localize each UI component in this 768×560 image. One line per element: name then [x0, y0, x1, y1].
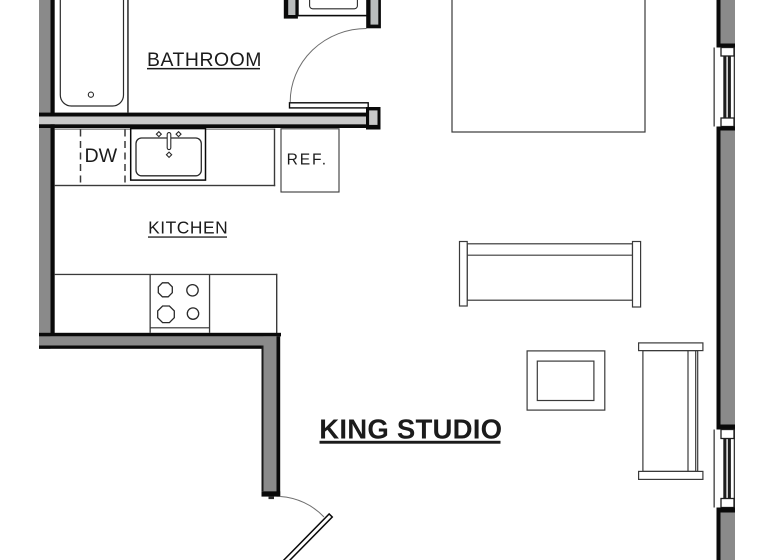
svg-text:BATHROOM: BATHROOM	[147, 49, 262, 71]
svg-text:DW: DW	[84, 145, 117, 167]
svg-text:KITCHEN: KITCHEN	[148, 218, 228, 238]
svg-text:REF.: REF.	[287, 152, 328, 169]
svg-text:KING STUDIO: KING STUDIO	[319, 414, 502, 445]
